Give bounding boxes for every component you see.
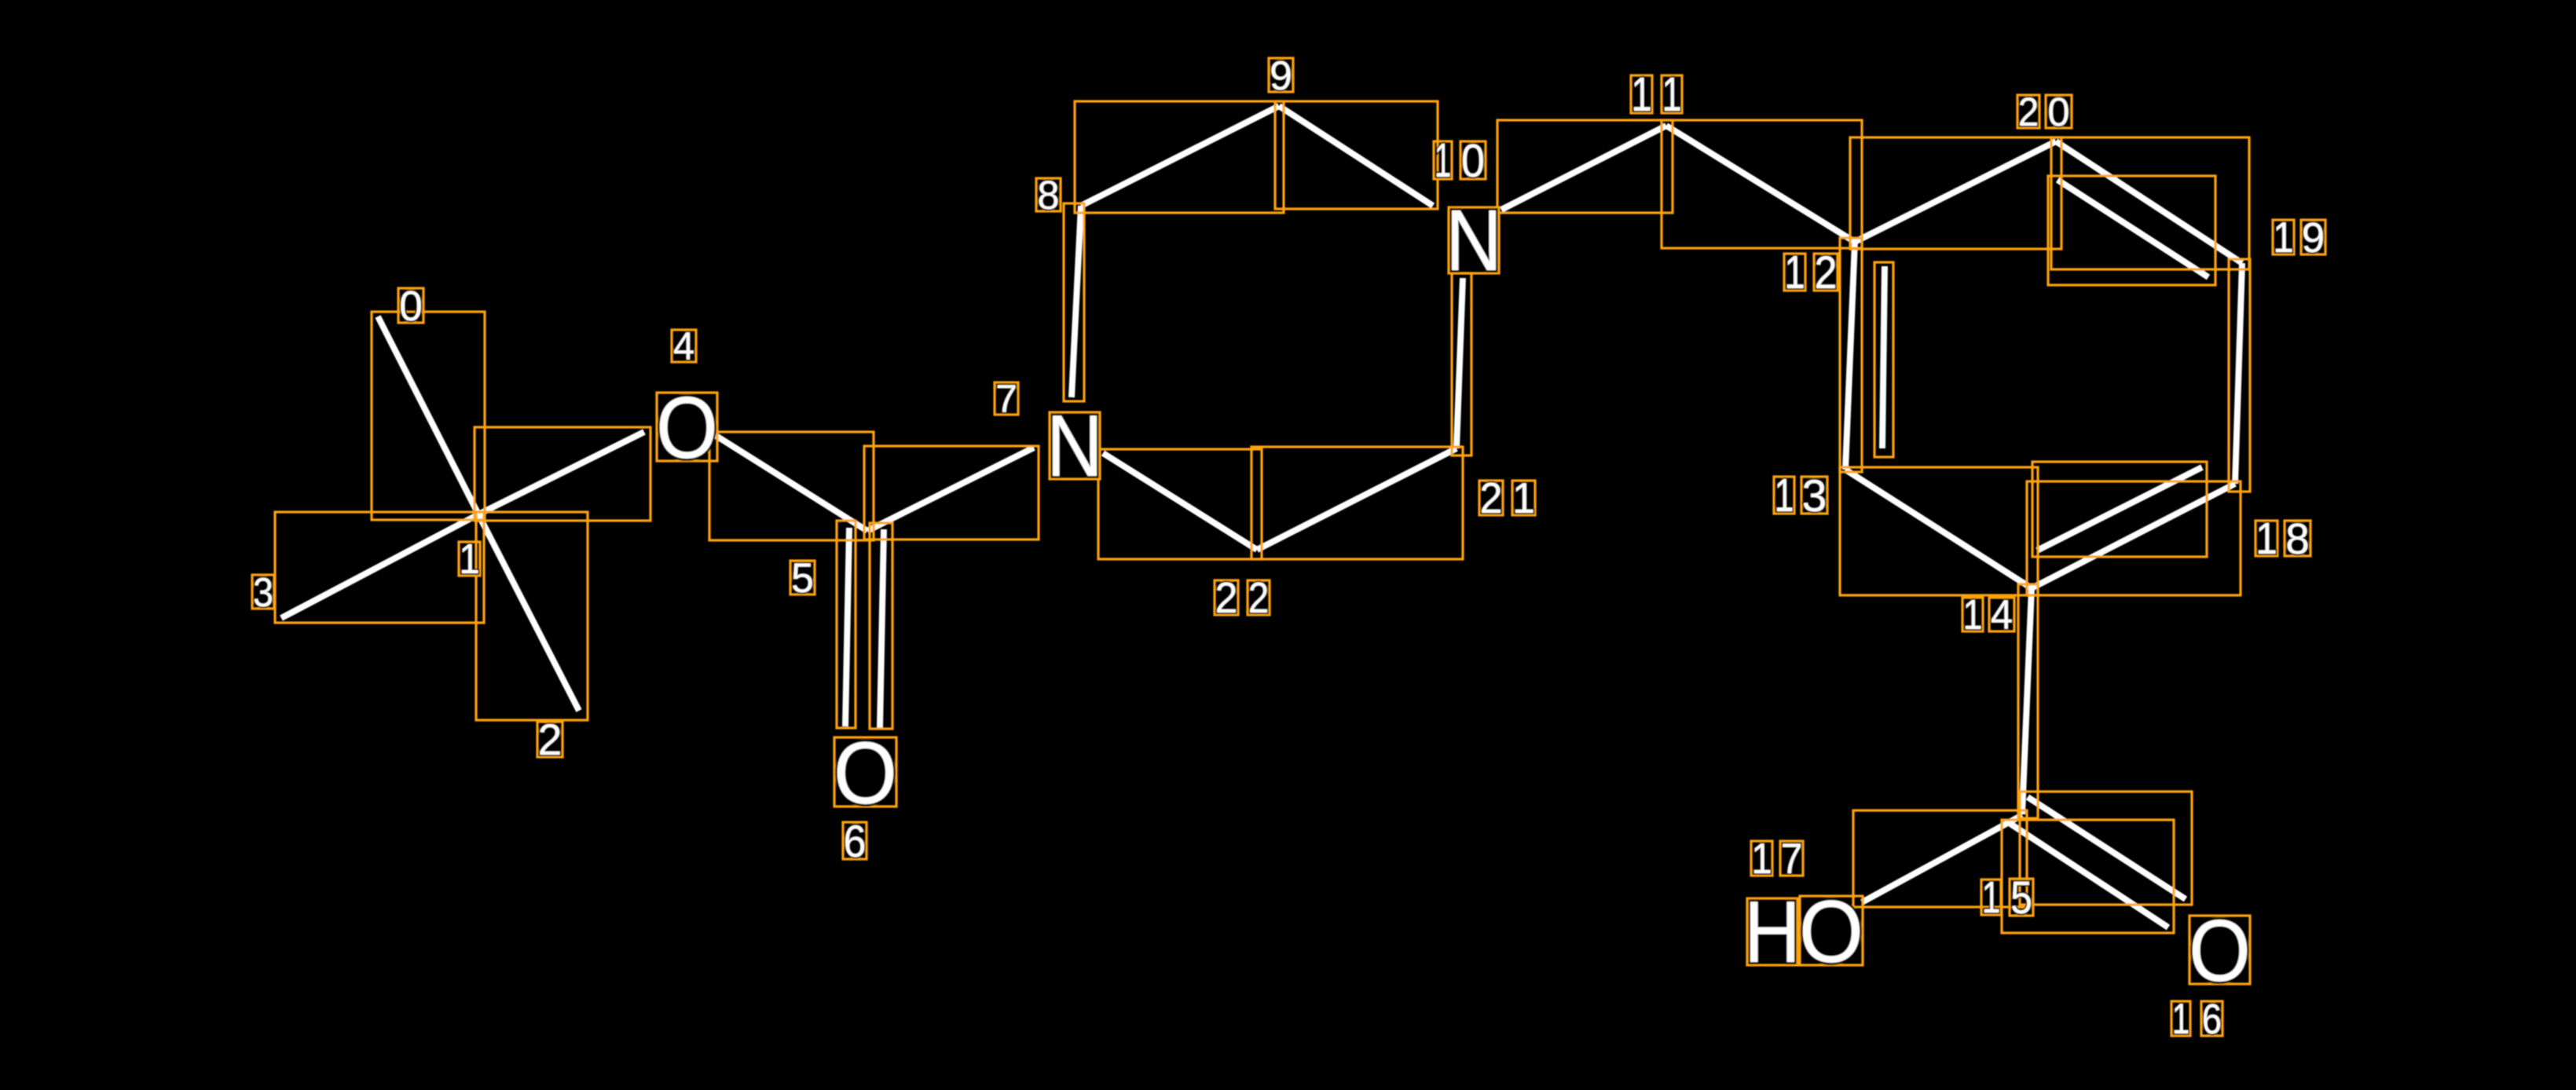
- svg-text:3: 3: [1802, 471, 1827, 521]
- svg-text:9: 9: [1270, 53, 1292, 99]
- svg-text:1: 1: [1751, 834, 1772, 883]
- svg-text:5: 5: [2010, 872, 2032, 924]
- svg-text:4: 4: [1991, 592, 2013, 638]
- svg-text:0: 0: [1461, 136, 1485, 188]
- svg-text:8: 8: [1037, 173, 1059, 218]
- svg-text:0: 0: [2047, 90, 2069, 134]
- svg-text:1: 1: [459, 535, 480, 582]
- svg-text:1: 1: [1962, 591, 1982, 638]
- svg-text:6: 6: [844, 816, 867, 867]
- svg-text:1: 1: [2172, 995, 2190, 1043]
- svg-text:O: O: [1799, 883, 1863, 982]
- svg-text:8: 8: [2285, 514, 2310, 563]
- svg-text:4: 4: [673, 325, 694, 369]
- svg-text:1: 1: [1662, 68, 1681, 122]
- svg-text:1: 1: [1774, 470, 1794, 521]
- svg-text:1: 1: [2255, 514, 2277, 563]
- svg-text:N: N: [1046, 397, 1103, 495]
- svg-text:9: 9: [2302, 215, 2325, 262]
- svg-text:O: O: [834, 724, 897, 822]
- svg-text:2: 2: [1215, 575, 1237, 622]
- svg-text:2: 2: [1814, 247, 1837, 298]
- svg-text:1: 1: [1631, 67, 1652, 121]
- svg-text:6: 6: [2202, 996, 2222, 1043]
- svg-text:2: 2: [1248, 574, 1270, 621]
- svg-text:3: 3: [253, 570, 273, 616]
- svg-text:O: O: [656, 379, 718, 477]
- svg-text:7: 7: [1781, 836, 1803, 883]
- svg-text:2: 2: [1479, 475, 1502, 522]
- svg-text:5: 5: [791, 555, 814, 602]
- svg-text:N: N: [1446, 193, 1502, 289]
- svg-text:1: 1: [1435, 134, 1452, 187]
- svg-text:H: H: [1744, 883, 1801, 981]
- svg-text:7: 7: [995, 377, 1017, 421]
- svg-text:O: O: [2189, 902, 2251, 1000]
- svg-text:0: 0: [399, 283, 423, 330]
- svg-text:1: 1: [2273, 213, 2294, 262]
- svg-text:1: 1: [1784, 247, 1805, 298]
- svg-text:1: 1: [1512, 474, 1535, 523]
- svg-text:1: 1: [1981, 872, 2000, 922]
- svg-text:2: 2: [538, 715, 562, 764]
- svg-text:2: 2: [2018, 89, 2039, 134]
